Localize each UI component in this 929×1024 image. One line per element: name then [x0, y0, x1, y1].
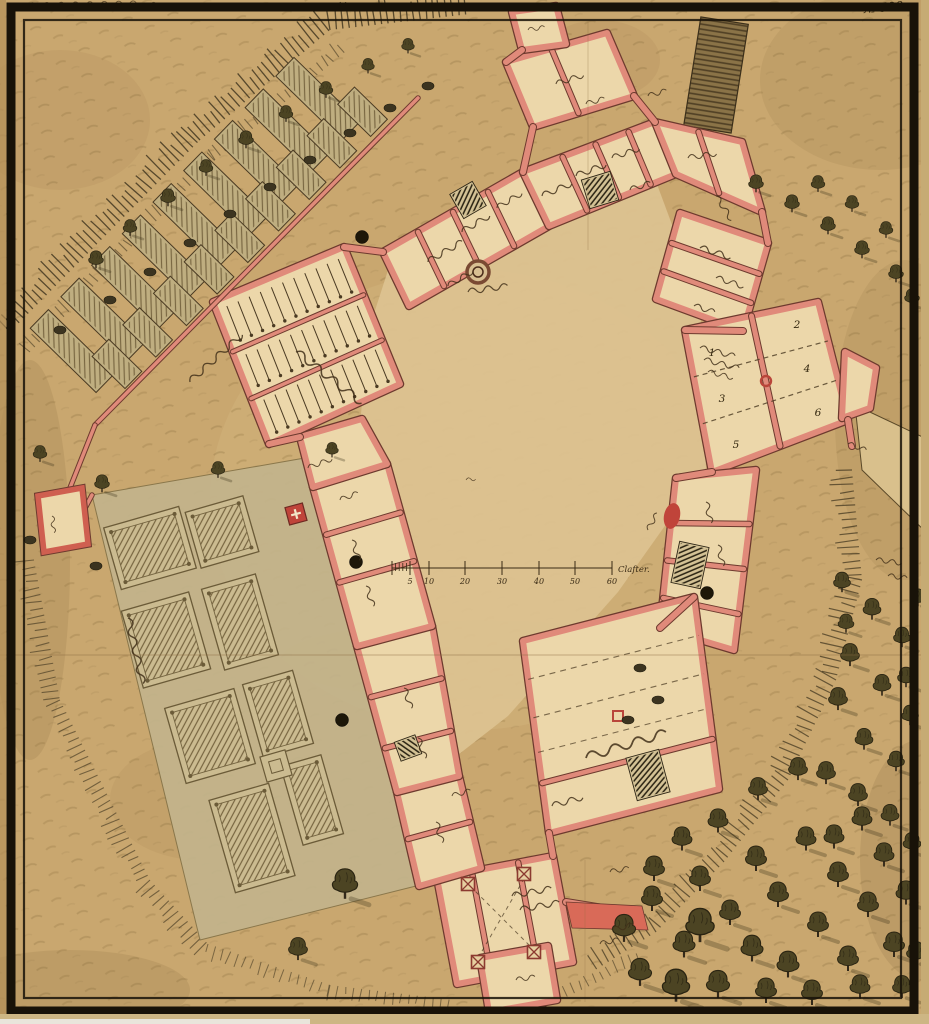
tether-post [297, 420, 300, 423]
bush-icon [184, 239, 196, 247]
scale-unit-label: Clafter. [618, 565, 650, 575]
bush-icon [54, 326, 66, 334]
circle-decor [467, 261, 489, 283]
tether-post [317, 305, 320, 308]
scale-tick-label: 20 [459, 577, 470, 586]
tether-post [250, 334, 253, 337]
curtain-wall [848, 420, 852, 446]
tether-post [339, 295, 342, 298]
room-number: 1 [709, 347, 716, 359]
tether-post [364, 390, 367, 393]
tether-post [257, 384, 260, 387]
tether-post [350, 290, 353, 293]
west-outwork [38, 488, 88, 552]
room-number: 5 [733, 439, 740, 451]
tether-post [308, 415, 311, 418]
tether-post [294, 314, 297, 317]
bush-icon [652, 696, 664, 704]
bush-icon [634, 664, 646, 672]
tether-post [286, 425, 289, 428]
bush-icon [384, 104, 396, 112]
room-number: 6 [815, 407, 822, 419]
scale-tick-label: 5 [407, 577, 412, 586]
curtain-wall [671, 523, 749, 524]
bush-icon [264, 183, 276, 191]
bush-icon [104, 296, 116, 304]
tether-post [334, 349, 337, 352]
chapel-mark [285, 503, 307, 525]
stove-dot [356, 231, 369, 244]
scanned-map-page: 5102030405060 № 598. Clafter. 123456 [0, 0, 929, 1024]
tether-post [301, 364, 304, 367]
tether-post [328, 300, 331, 303]
tether-post [342, 400, 345, 403]
curtain-wall [549, 833, 553, 856]
gate-ramp [566, 902, 648, 930]
scale-tick-label: 60 [607, 577, 617, 586]
room-number: 2 [793, 319, 801, 331]
room-number: 4 [803, 363, 811, 375]
tether-post [283, 319, 286, 322]
tether-post [375, 385, 378, 388]
tether-post [368, 334, 371, 337]
scale-tick-label: 50 [570, 577, 580, 586]
fortress-plan-svg: 5102030405060 № 598. Clafter. 123456 [0, 0, 929, 1024]
tether-post [279, 374, 282, 377]
bush-icon [622, 716, 634, 724]
tether-post [275, 430, 278, 433]
scale-tick-label: 30 [497, 577, 507, 586]
room-number: 3 [719, 393, 726, 405]
tether-post [386, 380, 389, 383]
curtain-wall [685, 330, 743, 331]
stove-dot [336, 714, 349, 727]
scale-tick-label: 10 [424, 577, 434, 586]
bush-icon [144, 268, 156, 276]
bush-icon [304, 156, 316, 164]
wing [480, 946, 557, 1012]
stove-dot [701, 587, 714, 600]
tether-post [346, 344, 349, 347]
tether-post [312, 359, 315, 362]
bush-icon [90, 562, 102, 570]
tether-post [261, 329, 264, 332]
tether-post [268, 379, 271, 382]
bush-icon [24, 536, 36, 544]
tether-post [323, 354, 326, 357]
tether-post [272, 324, 275, 327]
tether-post [305, 310, 308, 313]
courtyard-well [467, 261, 489, 283]
hachure-tick [26, 581, 38, 582]
wing [523, 597, 719, 833]
tether-post [320, 410, 323, 413]
scale-tick-label: 40 [533, 577, 544, 586]
bush-icon [422, 82, 434, 90]
hachure-tick [829, 484, 853, 485]
tether-post [331, 405, 334, 408]
tether-post [357, 339, 360, 342]
tether-post [290, 369, 293, 372]
bush-icon [344, 129, 356, 137]
bush-icon [224, 210, 236, 218]
